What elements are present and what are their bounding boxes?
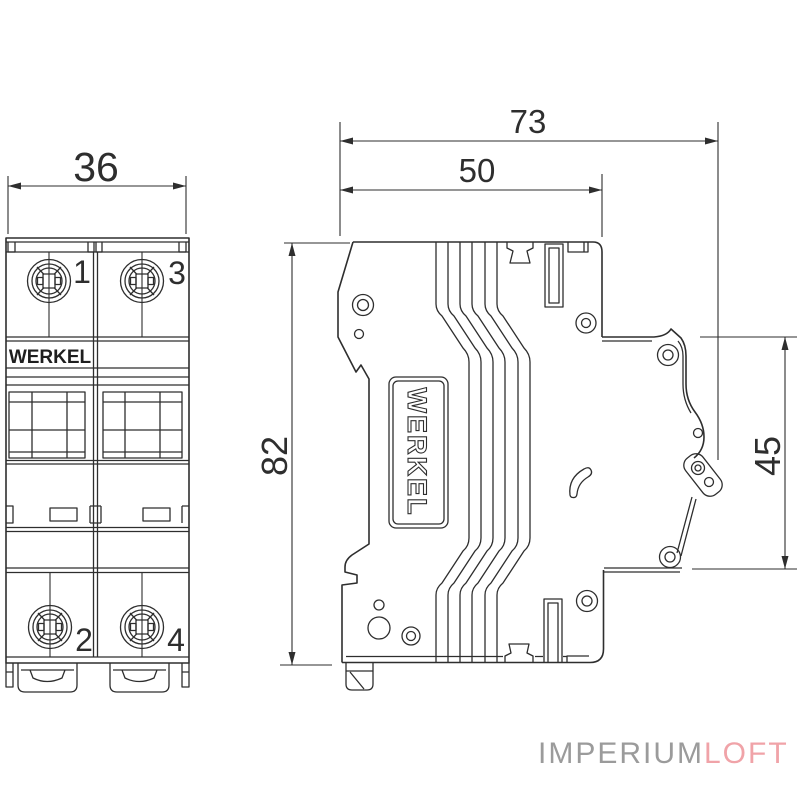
top-mount-tab (507, 242, 533, 263)
crescent-mark (570, 468, 592, 498)
dim-label-73: 73 (510, 103, 547, 140)
technical-drawing-page: 1 3 2 4 WERKEL (0, 0, 800, 800)
front-bottom-clips (6, 663, 189, 692)
dim-label-36: 36 (73, 144, 119, 190)
side-brand-label: WERKEL (402, 388, 432, 517)
breaker-drawing-canvas: 1 3 2 4 WERKEL (0, 0, 800, 800)
dim-label-82: 82 (254, 436, 295, 476)
watermark-imperium: IMPERIUM (538, 737, 704, 770)
terminal-label-2: 2 (75, 622, 93, 658)
terminal-clamp (680, 450, 726, 500)
dimension-36: 36 (8, 144, 186, 234)
lower-slot (544, 599, 562, 662)
dimensions: 36 73 50 82 45 (8, 103, 797, 665)
side-brand-plate: WERKEL (389, 377, 448, 528)
dimension-73: 73 (340, 103, 718, 460)
toggle-switches (9, 392, 182, 458)
bottom-mount-tab (505, 644, 533, 662)
dimension-50: 50 (340, 152, 602, 237)
front-view: 1 3 2 4 WERKEL (6, 238, 189, 692)
terminal-label-4: 4 (167, 622, 185, 658)
watermark-loft: LOFT (704, 737, 789, 770)
upper-slot (545, 244, 563, 307)
pole-divider (94, 252, 98, 657)
dimension-45: 45 (692, 337, 797, 569)
terminal-label-3: 3 (168, 255, 186, 291)
din-clip-tab (346, 663, 373, 690)
front-brand-label: WERKEL (9, 347, 92, 368)
din-rail-clip-edge (338, 242, 369, 663)
terminal-label-1: 1 (73, 254, 91, 290)
dim-label-50: 50 (459, 152, 496, 189)
mechanism-contour-lines (436, 242, 530, 662)
watermark: IMPERIUMLOFT (538, 737, 789, 770)
side-view: WERKEL (338, 242, 726, 690)
dim-label-45: 45 (747, 436, 788, 476)
dimension-82: 82 (254, 243, 350, 665)
